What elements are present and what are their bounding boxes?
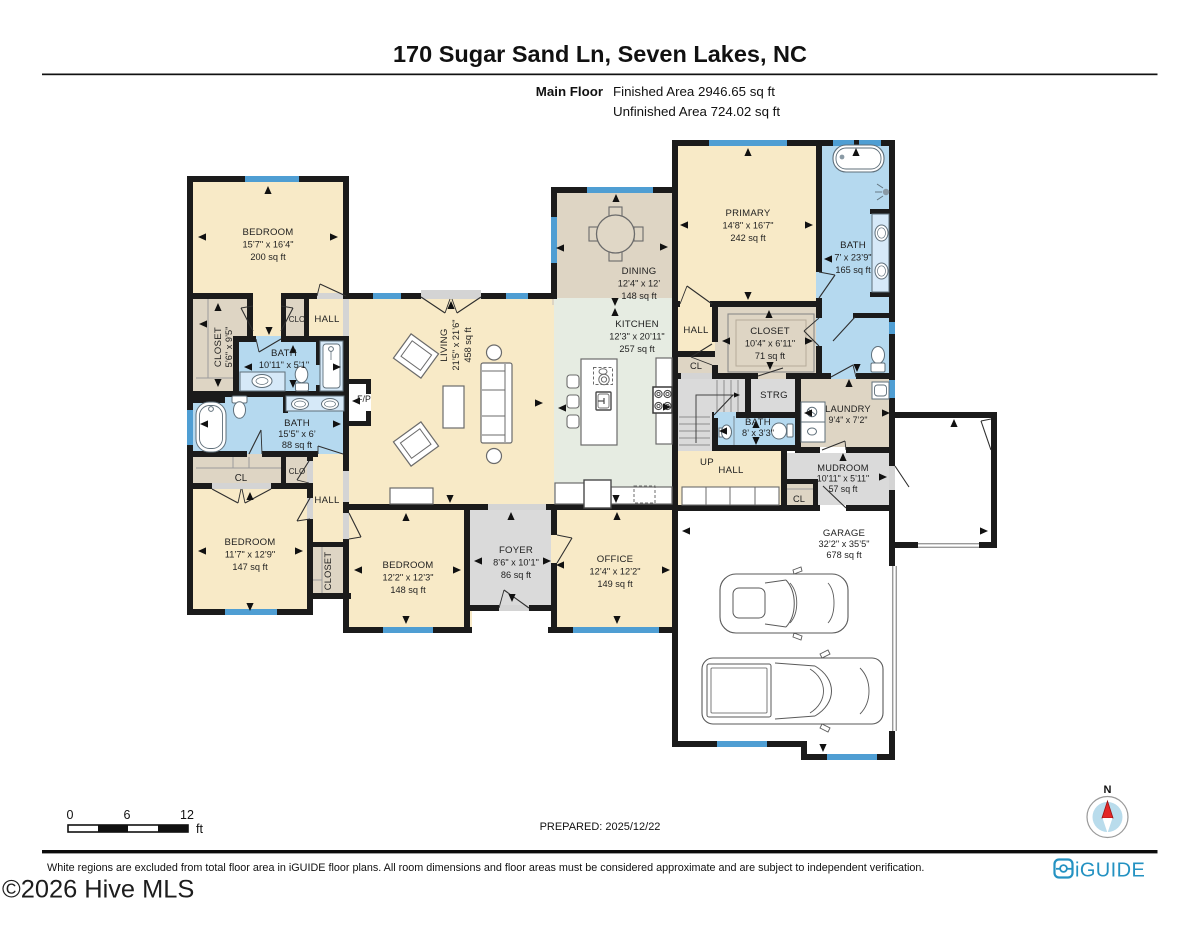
svg-text:Main Floor: Main Floor [536, 84, 603, 99]
svg-text:BATH: BATH [745, 417, 771, 428]
svg-text:21’5" x 21’6": 21’5" x 21’6" [451, 320, 461, 371]
svg-text:STRG: STRG [760, 390, 788, 401]
svg-text:CL: CL [235, 473, 248, 484]
svg-text:12’4" x 12’: 12’4" x 12’ [618, 279, 661, 289]
svg-text:CLOSET: CLOSET [323, 552, 333, 591]
svg-text:14’8" x 16’7": 14’8" x 16’7" [723, 221, 774, 231]
svg-text:10’11" x 5’1": 10’11" x 5’1" [259, 360, 309, 370]
svg-text:HALL: HALL [314, 495, 340, 506]
svg-text:148 sq ft: 148 sq ft [621, 291, 657, 301]
svg-text:BEDROOM: BEDROOM [383, 560, 434, 571]
svg-text:10’4" x 6’11": 10’4" x 6’11" [745, 339, 795, 349]
svg-text:HALL: HALL [683, 325, 709, 336]
svg-text:12’4" x 12’2": 12’4" x 12’2" [590, 567, 641, 577]
svg-text:LAUNDRY: LAUNDRY [825, 404, 871, 414]
svg-text:N: N [1104, 784, 1112, 796]
svg-text:0: 0 [67, 808, 74, 822]
svg-text:57 sq ft: 57 sq ft [829, 484, 858, 494]
svg-text:148 sq ft: 148 sq ft [390, 585, 426, 595]
svg-text:15’5" x 6’: 15’5" x 6’ [278, 429, 315, 439]
svg-text:12’2" x 12’3": 12’2" x 12’3" [383, 573, 434, 583]
svg-text:71 sq ft: 71 sq ft [755, 351, 786, 361]
svg-text:White regions are excluded fro: White regions are excluded from total fl… [47, 862, 924, 874]
svg-text:165 sq ft: 165 sq ft [835, 265, 871, 275]
svg-text:CLO: CLO [289, 315, 305, 324]
svg-text:15’7" x 16’4": 15’7" x 16’4" [243, 240, 294, 250]
svg-text:F/P: F/P [357, 394, 371, 404]
svg-text:CLOSET: CLOSET [750, 326, 790, 337]
svg-text:KITCHEN: KITCHEN [615, 319, 659, 330]
svg-text:9’4" x 7’2": 9’4" x 7’2" [828, 415, 867, 425]
svg-text:BATH: BATH [271, 348, 297, 359]
svg-text:HALL: HALL [314, 314, 340, 325]
svg-text:OFFICE: OFFICE [597, 554, 633, 565]
svg-text:7’ x 23’9": 7’ x 23’9" [834, 253, 871, 263]
svg-text:10’11" x 5’11": 10’11" x 5’11" [817, 474, 869, 484]
svg-text:12: 12 [180, 808, 194, 822]
svg-text:BATH: BATH [840, 240, 866, 251]
svg-text:8’ x 3’3": 8’ x 3’3" [742, 428, 774, 438]
svg-text:11’7" x 12’9": 11’7" x 12’9" [225, 550, 275, 560]
svg-text:PRIMARY: PRIMARY [726, 208, 771, 219]
svg-text:FOYER: FOYER [499, 545, 533, 556]
svg-text:iGUIDE: iGUIDE [1075, 860, 1145, 882]
svg-text:UP: UP [700, 457, 714, 468]
svg-text:LIVING: LIVING [439, 328, 450, 361]
svg-text:242 sq ft: 242 sq ft [730, 233, 766, 243]
svg-text:BEDROOM: BEDROOM [225, 537, 276, 548]
svg-text:86 sq ft: 86 sq ft [501, 570, 532, 580]
svg-text:DINING: DINING [622, 266, 657, 277]
svg-text:BEDROOM: BEDROOM [243, 227, 294, 238]
svg-text:©2026 Hive MLS: ©2026 Hive MLS [2, 876, 194, 904]
svg-text:BATH: BATH [284, 418, 310, 429]
svg-text:CL: CL [690, 361, 702, 371]
svg-text:PREPARED: 2025/12/22: PREPARED: 2025/12/22 [540, 821, 661, 833]
svg-text:88 sq ft: 88 sq ft [282, 440, 313, 450]
svg-text:257 sq ft: 257 sq ft [619, 344, 655, 354]
svg-text:170 Sugar Sand Ln, Seven Lakes: 170 Sugar Sand Ln, Seven Lakes, NC [393, 41, 807, 67]
svg-text:200 sq ft: 200 sq ft [250, 252, 286, 262]
svg-text:GARAGE: GARAGE [823, 528, 865, 539]
svg-text:149 sq ft: 149 sq ft [597, 579, 633, 589]
svg-text:12’3" x 20’11": 12’3" x 20’11" [609, 332, 664, 342]
svg-text:CLOSET: CLOSET [213, 327, 224, 367]
svg-text:Finished Area 2946.65 sq ft: Finished Area 2946.65 sq ft [613, 84, 775, 99]
svg-text:ft: ft [196, 822, 203, 836]
svg-text:CLO: CLO [289, 467, 305, 476]
svg-text:8’6" x 10’1": 8’6" x 10’1" [493, 558, 539, 568]
svg-text:CL: CL [793, 494, 805, 504]
svg-text:HALL: HALL [718, 465, 744, 476]
svg-text:678 sq ft: 678 sq ft [826, 550, 862, 560]
svg-text:5’6" x 9’5": 5’6" x 9’5" [224, 327, 234, 368]
svg-text:32’2" x 35’5": 32’2" x 35’5" [819, 539, 870, 549]
svg-text:MUDROOM: MUDROOM [817, 463, 869, 473]
svg-text:Unfinished Area 724.02 sq ft: Unfinished Area 724.02 sq ft [613, 104, 780, 119]
svg-text:458 sq ft: 458 sq ft [463, 327, 473, 363]
svg-text:147 sq ft: 147 sq ft [232, 562, 268, 572]
svg-text:6: 6 [124, 808, 131, 822]
